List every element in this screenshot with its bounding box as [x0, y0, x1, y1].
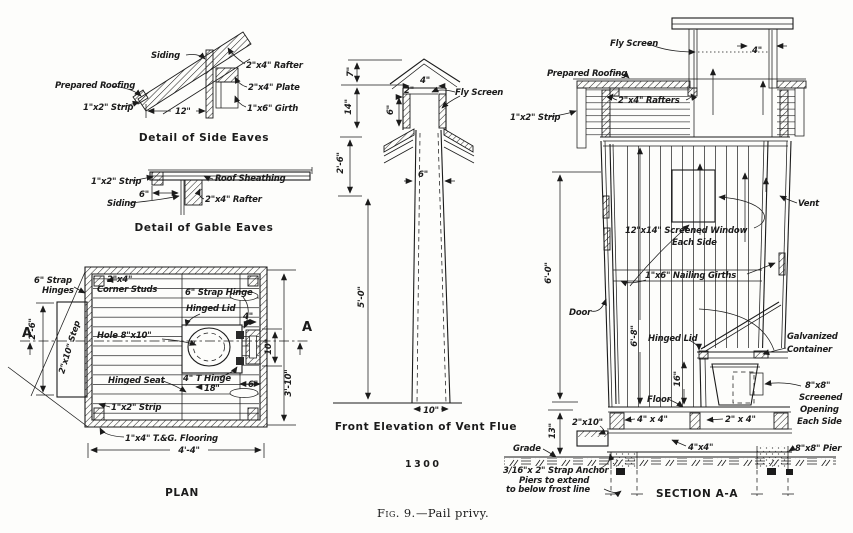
label-dim-2: 2" — [404, 86, 414, 96]
side-eaves-title: Detail of Side Eaves — [139, 132, 269, 144]
label-dim-7: 7" — [346, 67, 356, 77]
eave-strip-left — [577, 88, 586, 148]
label-rafter: 2"x4" Rafter — [246, 61, 304, 71]
label-dim-4: 4" — [751, 46, 762, 56]
label-hinged-lid: Hinged Lid — [648, 334, 699, 344]
left-wall — [601, 141, 609, 407]
label-dim-3-10: 3'-10" — [284, 369, 294, 396]
label-hinged-seat: Hinged Seat — [108, 376, 166, 386]
label-dim-13: 13" — [548, 423, 558, 439]
vent-flue-title: Front Elevation of Vent Flue — [335, 421, 517, 433]
label-dim-6-top: 6" — [386, 105, 396, 115]
flue-right-edge — [441, 130, 450, 403]
label-dim-6: 6" — [248, 380, 258, 390]
label-corner-studs-2: Corner Studs — [97, 285, 157, 295]
plate-number: 1300 — [405, 459, 441, 470]
label-galvanized-2: Container — [787, 345, 833, 355]
label-opening-1: 8"x8" — [805, 381, 830, 391]
flue-left-edge — [412, 130, 416, 403]
label-dim-6: 6" — [139, 190, 149, 200]
label-dim-6-mid: 6" — [418, 170, 428, 180]
label-strap-hinges-1: 6" Strap — [34, 276, 72, 286]
label-piers-note-2: to below frost line — [506, 485, 590, 495]
label-strip: 1"x2" Strip — [91, 177, 141, 187]
section-drawing: Fly Screen 4" Prepared Roofing 2"x4" Raf… — [503, 18, 843, 500]
roof-band-left — [577, 81, 690, 88]
strip-block — [152, 172, 163, 185]
label-strap-anchor: 3/16"x 2" Strap Anchor — [503, 466, 610, 476]
label-siding: Siding — [107, 199, 136, 209]
label-fly-screen: Fly Screen — [455, 88, 503, 98]
pail-privy-drawing: Prepared Roofing Siding 1"x2" Strip 12" … — [0, 0, 853, 533]
label-strap-hinge: 6" Strap Hinge — [185, 288, 253, 298]
label-dim-14: 14" — [344, 99, 354, 115]
pier-right — [757, 446, 788, 469]
figure-page: Prepared Roofing Siding 1"x2" Strip 12" … — [0, 0, 853, 533]
eave-strip-right — [795, 88, 804, 136]
girth-block — [216, 82, 238, 108]
label-step: 2"x10" Step — [57, 320, 83, 376]
label-strip: 1"x2" Strip — [111, 403, 161, 413]
label-rafters: 2"x4" Rafters — [618, 96, 680, 106]
label-floor: Floor — [647, 395, 672, 405]
label-pier: 8"x8" Pier — [795, 444, 842, 454]
label-window-2: Each Side — [672, 238, 717, 248]
label-joist-2x10: 2"x10" — [572, 418, 603, 428]
label-dim-2-6: 2'-6" — [336, 152, 346, 173]
pier-left — [611, 452, 637, 469]
hinge-block — [236, 357, 244, 365]
label-fly-screen: Fly Screen — [610, 39, 658, 49]
label-vent: Vent — [798, 199, 820, 209]
label-dim-6-8: 6'-8" — [630, 325, 640, 346]
label-t-hinge: 4" T Hinge — [182, 374, 231, 384]
label-dim-12: 12" — [175, 107, 191, 117]
label-opening-4: Each Side — [797, 417, 842, 427]
vent-flue-drawing: 7" 4" 2" Fly Screen 6" 14" 2'-6" 6" 5'-0… — [333, 59, 517, 470]
side-eaves-drawing: Prepared Roofing Siding 1"x2" Strip 12" … — [55, 32, 304, 144]
label-opening-2: Screened — [799, 393, 843, 403]
label-corner-studs-1: 2"x4" — [107, 275, 132, 285]
label-strip: 1"x2" Strip — [510, 113, 560, 123]
label-dim-6-0: 6'-0" — [544, 262, 554, 283]
galvanized-container — [712, 364, 758, 405]
label-sill-4x4: 4" x 4" — [636, 415, 668, 425]
plate-block — [216, 68, 238, 82]
label-plate: 2"x4" Plate — [248, 83, 300, 93]
siding-board — [206, 50, 213, 118]
label-girth: 1"x6" Girth — [247, 104, 298, 114]
section-marker-a-right: A — [302, 320, 312, 335]
plan-title: PLAN — [165, 487, 199, 499]
label-dim-2-6: 2'-6" — [28, 318, 38, 339]
label-hinged-lid: Hinged Lid — [186, 304, 237, 314]
label-skid-4x4: 4"x4" — [687, 443, 713, 453]
gable-eaves-drawing: 1"x2" Strip Siding 6" Roof Sheathing 2"x… — [91, 167, 312, 234]
label-window-1: 12"x14" Screened Window — [625, 226, 748, 236]
label-dim-4-4: 4'-4" — [177, 446, 199, 456]
plan-drawing: 6" Strap Hinges 2"x4" Corner Studs 6" St… — [8, 267, 312, 499]
caption-text: —Pail privy. — [416, 506, 489, 520]
label-grade: Grade — [513, 444, 541, 454]
label-dim-16: 16" — [673, 371, 683, 387]
label-strip: 1"x2" Strip — [83, 103, 133, 113]
label-roof-sheathing: Roof Sheathing — [215, 174, 286, 184]
label-girths: 1"x6" Nailing Girths — [645, 271, 736, 281]
label-flooring: 1"x4" T.&G. Flooring — [125, 434, 218, 444]
label-opening-3: Opening — [800, 405, 839, 415]
label-siding: Siding — [151, 51, 180, 61]
label-prepared-roofing: Prepared Roofing — [55, 81, 135, 91]
label-strap-hinges-2: Hinges — [42, 286, 74, 296]
figure-caption: Fig. 9. —Pail privy. — [377, 506, 489, 520]
label-dim-4: 4" — [419, 76, 430, 86]
label-hole: Hole 8"x10" — [97, 331, 151, 341]
caption-prefix: Fig. 9. — [377, 506, 416, 520]
gable-eaves-title: Detail of Gable Eaves — [135, 222, 274, 234]
label-dim-4: 4" — [242, 312, 253, 322]
label-dim-10: 10" — [264, 339, 274, 355]
section-title: SECTION A-A — [656, 488, 738, 500]
label-door: Door — [569, 308, 592, 318]
label-prepared-roofing: Prepared Roofing — [547, 69, 627, 79]
label-joist-2x4: 2" x 4" — [725, 415, 756, 425]
roof-band-right — [777, 81, 806, 88]
label-dim-18: 18" — [204, 384, 220, 394]
label-rafter: 2"x4" Rafter — [205, 195, 263, 205]
label-galvanized-1: Galvanized — [787, 332, 839, 342]
label-dim-10: 10" — [423, 406, 439, 416]
label-dim-5-0: 5'-0" — [357, 286, 367, 307]
hinge-block — [236, 331, 244, 339]
